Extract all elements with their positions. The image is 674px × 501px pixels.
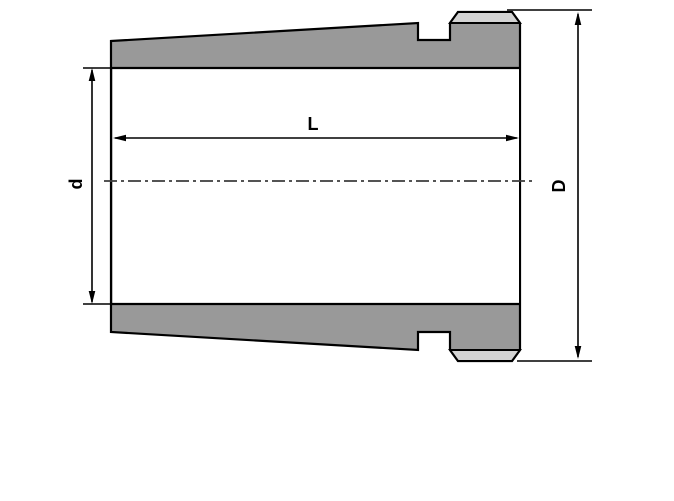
thread-collar-bottom (450, 350, 520, 361)
dimension-d: d (66, 68, 116, 304)
drawing-canvas: d L D (0, 0, 674, 501)
arrowhead-up-icon (575, 12, 582, 25)
label-length: L (308, 114, 319, 134)
arrowhead-down-icon (89, 291, 96, 304)
label-bore-diameter: d (66, 179, 86, 190)
label-outer-diameter: D (549, 180, 569, 193)
thread-collar-top (450, 12, 520, 23)
adapter-sleeve-diagram: d L D (0, 0, 674, 501)
bore-area (113, 69, 520, 303)
arrowhead-up-icon (89, 68, 96, 81)
arrowhead-down-icon (575, 346, 582, 359)
